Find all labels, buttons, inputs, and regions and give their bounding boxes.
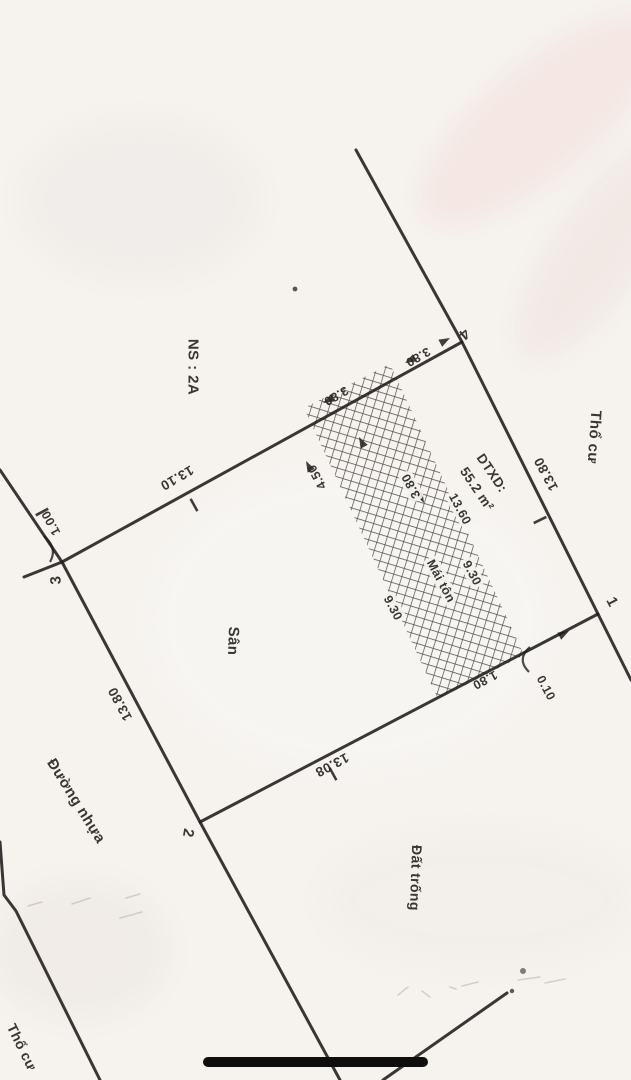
- paper-stains: [0, 0, 631, 1020]
- corner-label-3: 3: [47, 575, 65, 585]
- scale-bar: [203, 1057, 428, 1067]
- zone-label-ns: NS : 2A: [185, 339, 202, 395]
- dim-seg-near-c4: 3.80: [403, 344, 432, 369]
- zone-label-dat-trong: Đất trống: [407, 845, 425, 911]
- corner-label-2: 2: [179, 827, 197, 839]
- zone-label-duong-nhua: Đường nhựa: [43, 756, 109, 847]
- dim-edge-3-4: 13.10: [158, 463, 197, 494]
- dim-end-offset: 0.10: [534, 673, 559, 702]
- zone-label-san: Sân: [224, 626, 242, 655]
- survey-drawing: NS : 2A Thổ cư Sân Đất trống Đường nhựa …: [0, 0, 631, 1080]
- scanned-survey-page: NS : 2A Thổ cư Sân Đất trống Đường nhựa …: [0, 0, 631, 1080]
- zone-label-tho-cu-partial: Thổ cư: [4, 1021, 40, 1073]
- zone-label-tho-cu: Thổ cư: [584, 410, 605, 464]
- corner-label-1: 1: [602, 594, 621, 610]
